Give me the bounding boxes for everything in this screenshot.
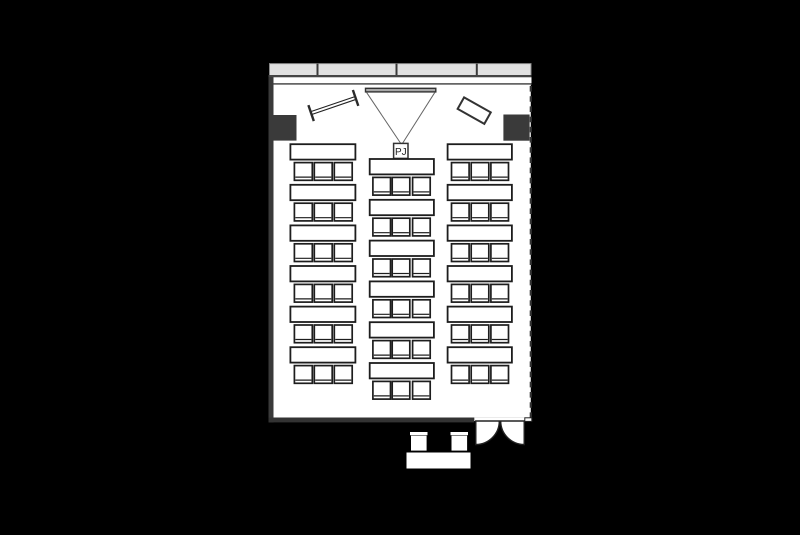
svg-text:PJ: PJ [395, 147, 407, 158]
